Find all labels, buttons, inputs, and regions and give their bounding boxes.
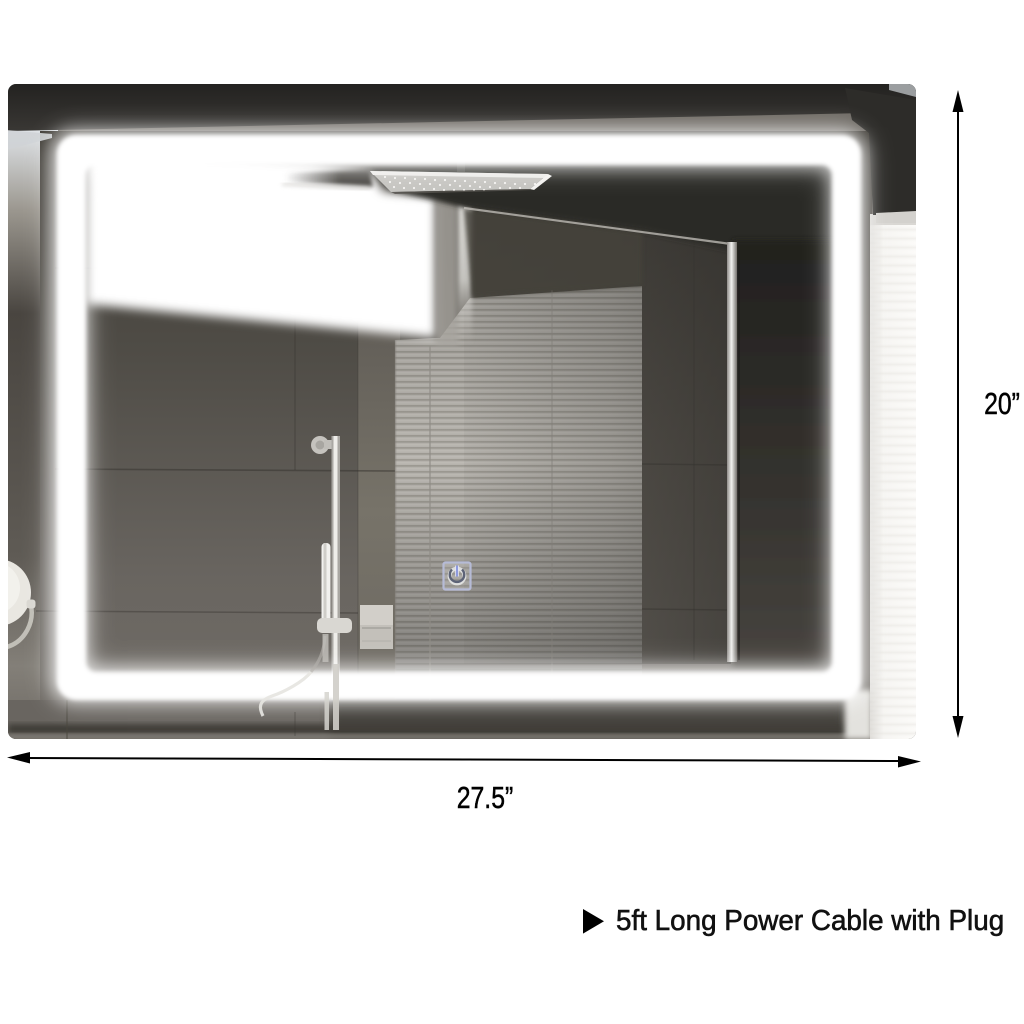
svg-text:27.5”: 27.5” [457, 780, 514, 814]
svg-text:5ft Long Power Cable with Plug: 5ft Long Power Cable with Plug [616, 904, 1004, 937]
svg-text:20”: 20” [984, 386, 1020, 420]
